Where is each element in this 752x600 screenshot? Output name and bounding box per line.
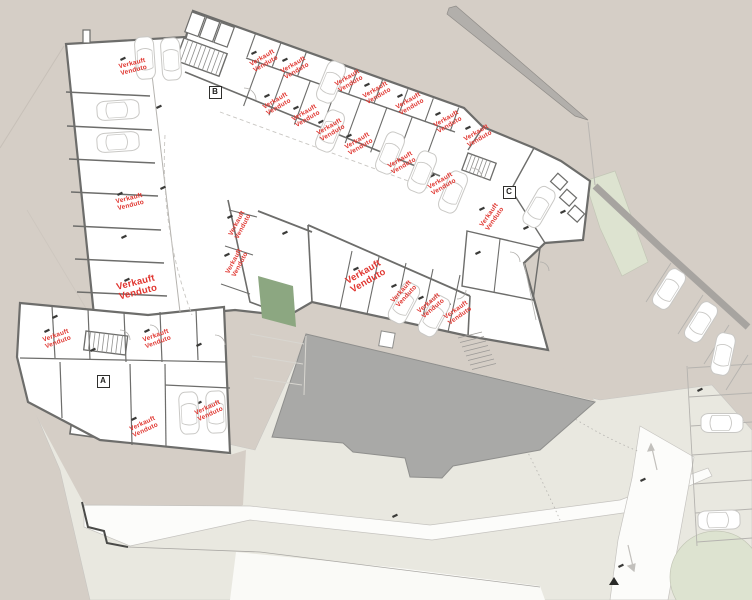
floor-plan: VerkauftVendutoVerkauftVendutoVerkauftVe…	[0, 0, 752, 600]
car-icon	[134, 36, 156, 79]
car-icon	[205, 391, 226, 434]
shaft	[83, 30, 90, 43]
plan-drawing	[0, 0, 752, 600]
car-icon	[96, 99, 139, 121]
car-icon	[701, 414, 743, 433]
car-icon	[698, 510, 741, 530]
car-icon	[160, 37, 182, 80]
roof-skylight	[379, 331, 395, 348]
car-icon	[178, 392, 199, 435]
car-icon	[96, 131, 139, 153]
